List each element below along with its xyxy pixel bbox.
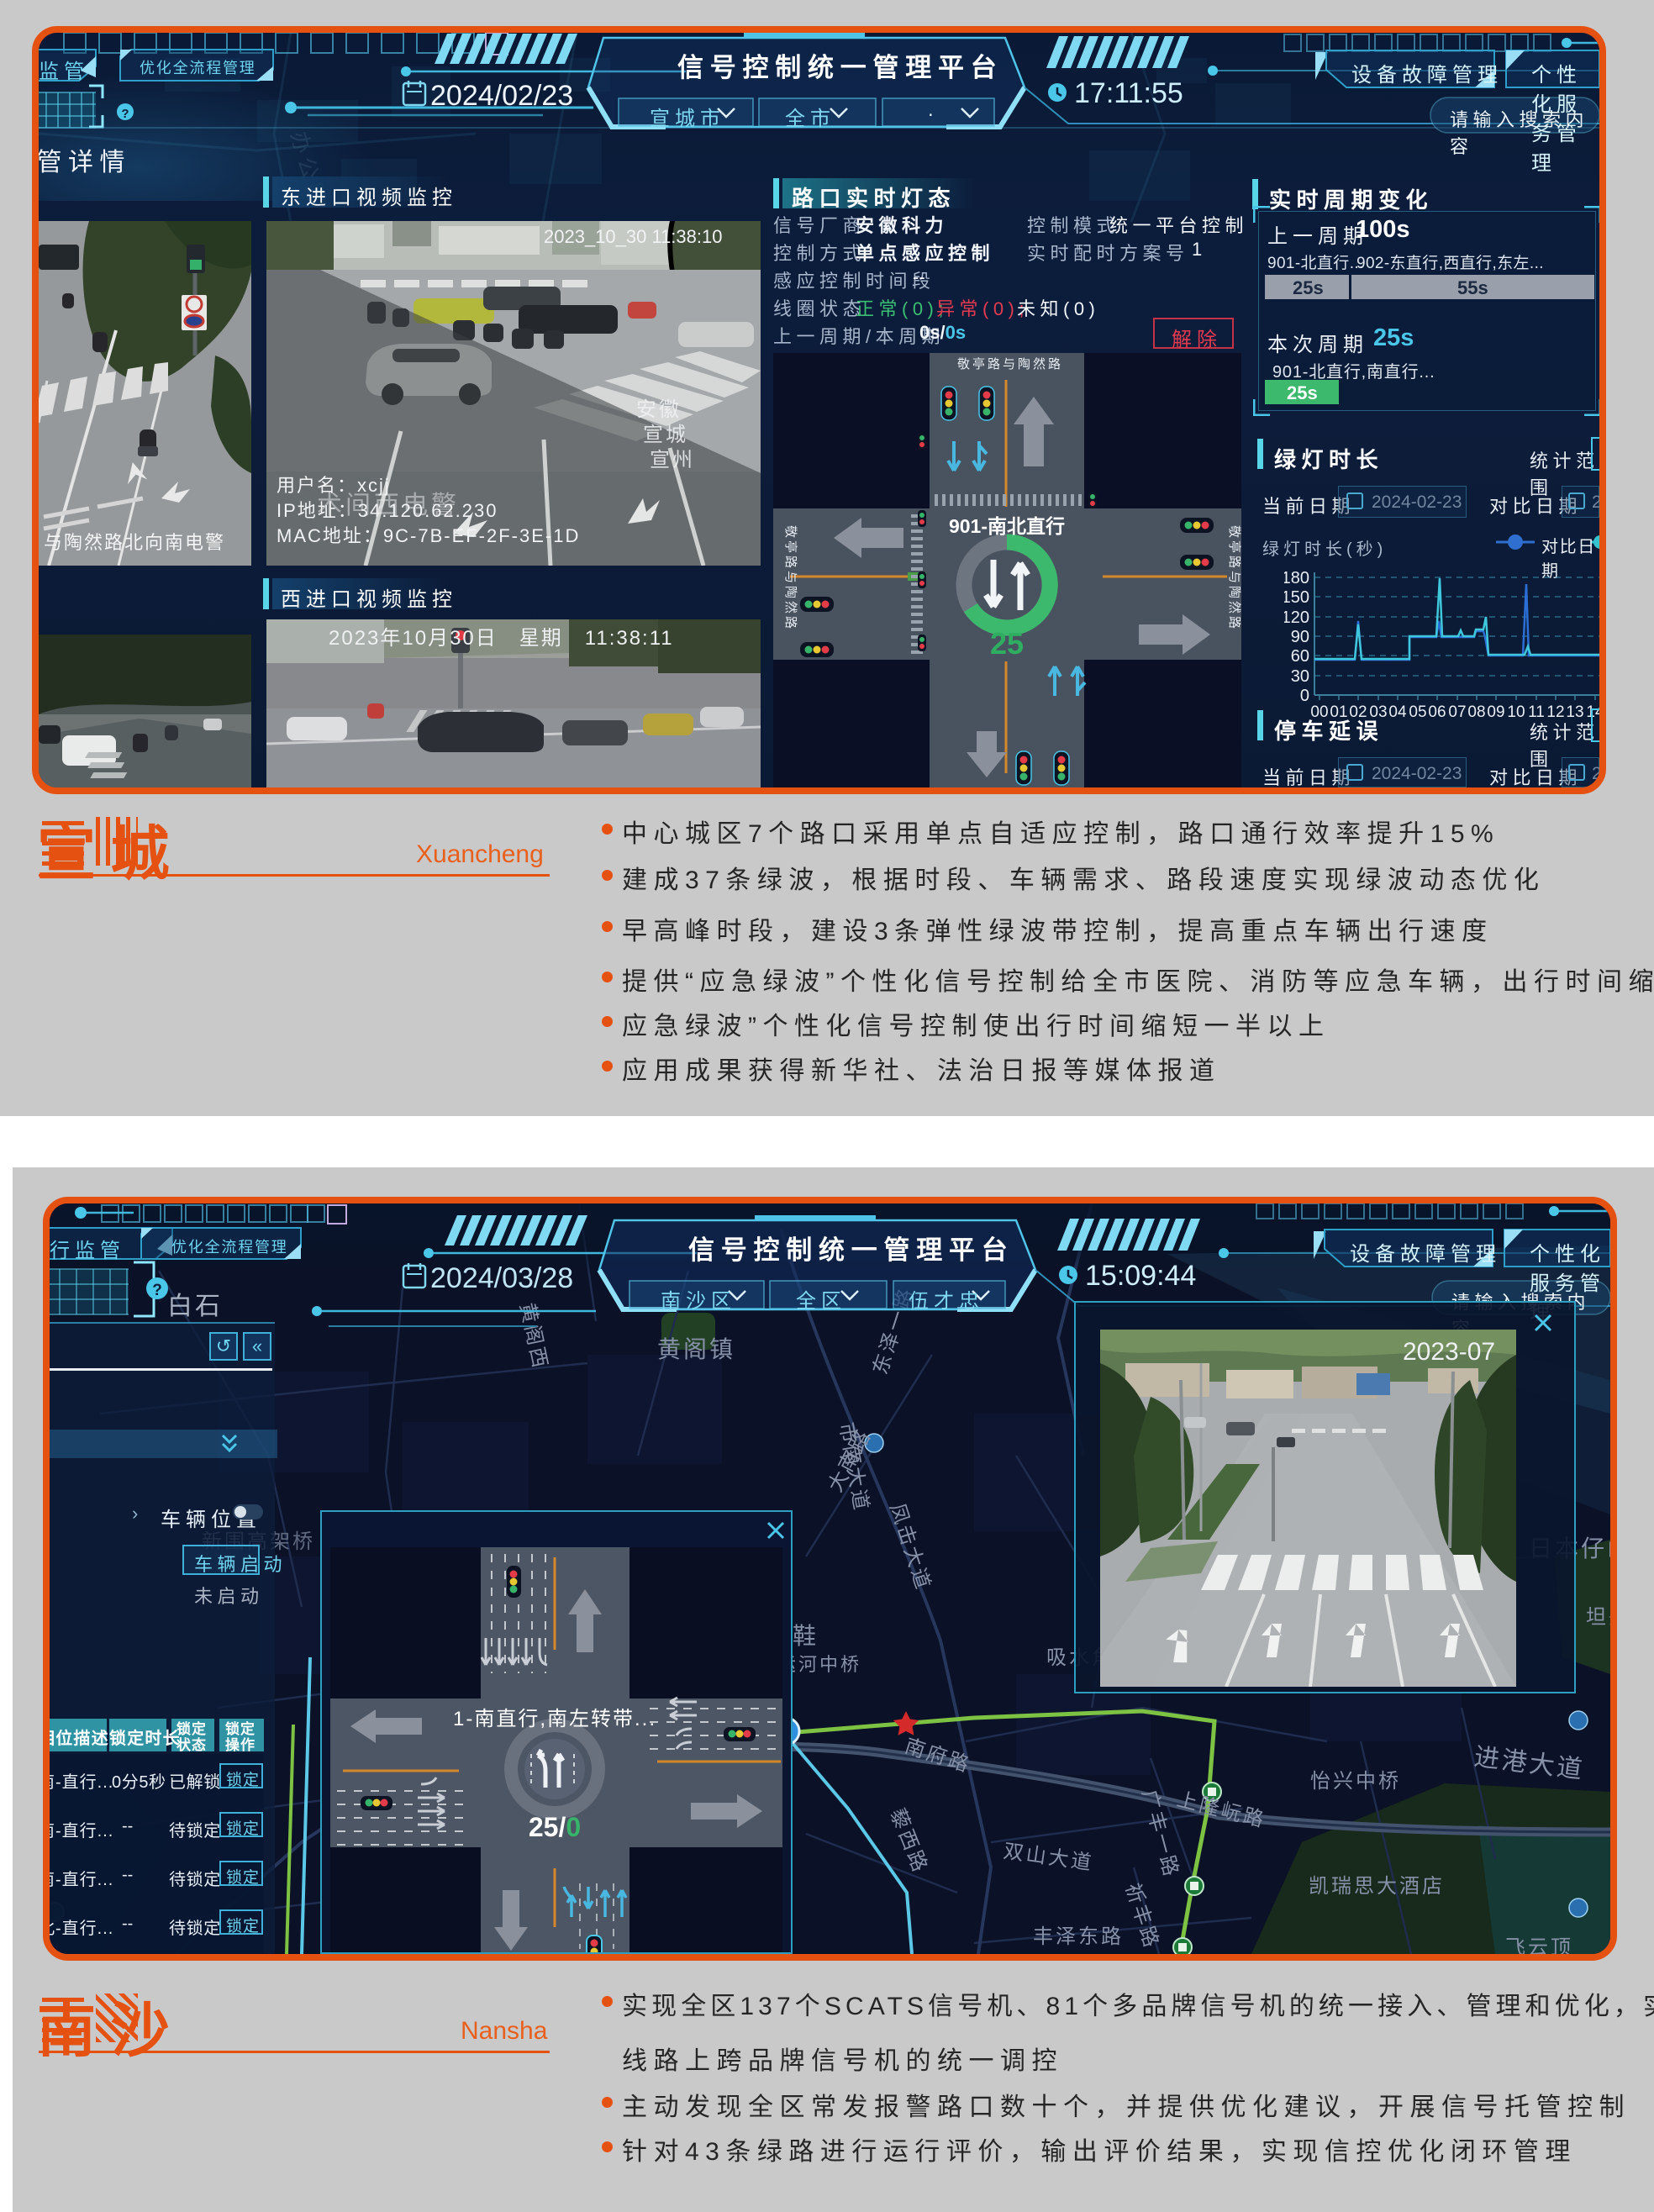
- svg-text:坦头: 坦头: [1586, 1606, 1610, 1629]
- svg-text:05: 05: [1409, 703, 1426, 721]
- svg-text:901-南北直行: 901-南北直行: [949, 515, 1065, 537]
- svg-text:60: 60: [1291, 647, 1309, 666]
- svg-text:宣城: 宣城: [643, 424, 688, 446]
- svg-text:06: 06: [1428, 703, 1446, 721]
- svg-text:凯瑞思大酒店: 凯瑞思大酒店: [1309, 1875, 1445, 1898]
- svg-text:2023年10月30日 星期 11:38:11: 2023年10月30日 星期 11:38:11: [329, 627, 674, 650]
- svg-text:飞云顶: 飞云顶: [1505, 1936, 1573, 1954]
- svg-text:2023_10_30 11:38:10: 2023_10_30 11:38:10: [544, 226, 722, 247]
- svg-text:150: 150: [1284, 588, 1309, 607]
- svg-text:10: 10: [1507, 703, 1525, 721]
- svg-text:?: ?: [152, 1282, 162, 1299]
- svg-text:2023-07: 2023-07: [1403, 1338, 1495, 1366]
- svg-text:04: 04: [1388, 703, 1407, 721]
- svg-text:敬亭路与陶然路: 敬亭路与陶然路: [783, 525, 798, 631]
- svg-text:120: 120: [1284, 608, 1309, 627]
- svg-text:怡兴中桥: 怡兴中桥: [1310, 1770, 1401, 1793]
- svg-text:25: 25: [990, 626, 1024, 661]
- svg-text:术间西电警: 术间西电警: [317, 492, 460, 519]
- svg-text:MAC地址：9C-7B-EF-2F-3E-1D: MAC地址：9C-7B-EF-2F-3E-1D: [277, 525, 580, 546]
- svg-text:鞋: 鞋: [793, 1623, 819, 1649]
- svg-text:安徽: 安徽: [636, 398, 682, 421]
- svg-text:30: 30: [1291, 667, 1309, 686]
- svg-text:敬亭路与陶然路: 敬亭路与陶然路: [1227, 525, 1241, 631]
- svg-text:丰泽东路: 丰泽东路: [1033, 1925, 1124, 1948]
- svg-text:25/0: 25/0: [529, 1812, 581, 1842]
- svg-text:敬亭路与陶然路: 敬亭路与陶然路: [957, 356, 1063, 371]
- svg-text:0: 0: [1300, 687, 1309, 705]
- svg-text:09: 09: [1487, 703, 1504, 721]
- svg-text:90: 90: [1291, 628, 1309, 646]
- svg-text:180: 180: [1284, 569, 1309, 587]
- svg-text:与陶然路北向南电警: 与陶然路北向南电警: [44, 532, 225, 553]
- svg-text:?: ?: [121, 107, 129, 121]
- svg-text:07: 07: [1448, 703, 1466, 721]
- svg-text:宣州: 宣州: [650, 449, 695, 471]
- svg-text:1-南直行,南左转带...: 1-南直行,南左转带...: [453, 1708, 656, 1730]
- svg-text:08: 08: [1467, 703, 1485, 721]
